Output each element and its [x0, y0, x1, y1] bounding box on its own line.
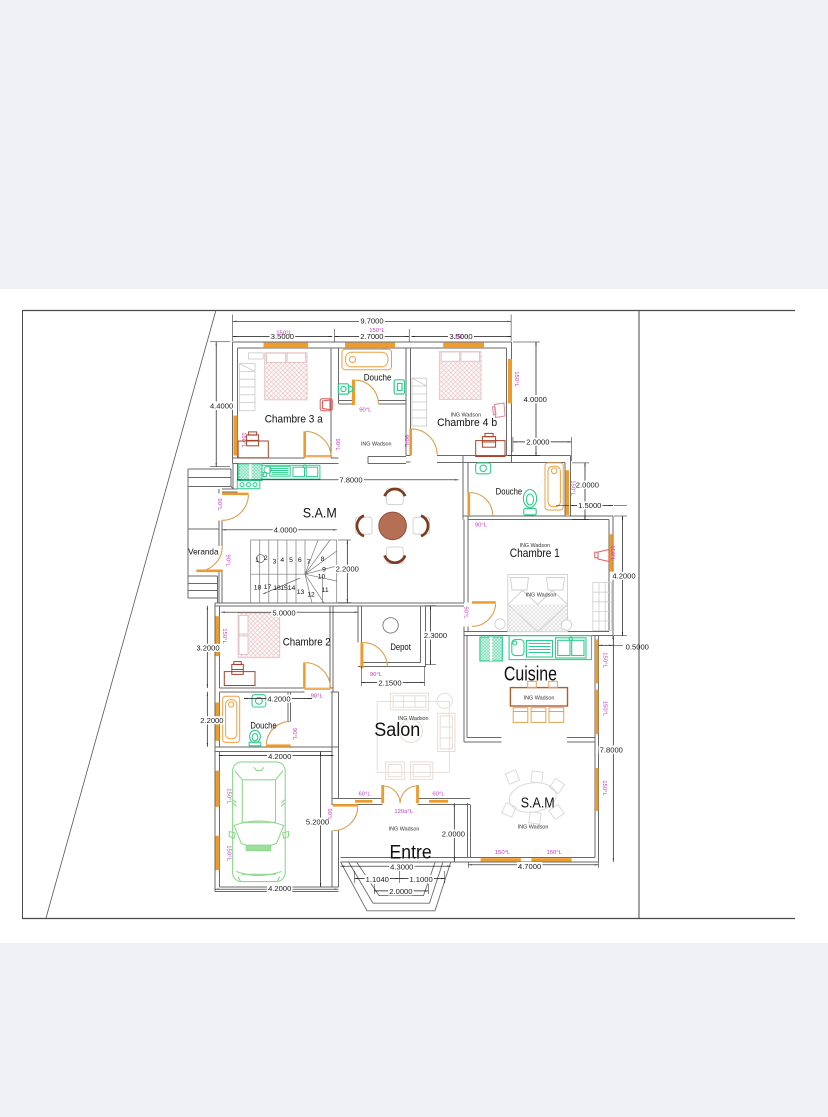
svg-text:9: 9: [322, 566, 326, 573]
svg-text:Chambre 1: Chambre 1: [510, 546, 560, 560]
svg-text:2.0000: 2.0000: [576, 481, 599, 490]
svg-text:Veranda: Veranda: [188, 547, 219, 557]
svg-text:150°L: 150°L: [221, 628, 227, 644]
svg-text:0.5000: 0.5000: [626, 642, 649, 651]
svg-text:S.A.M: S.A.M: [303, 505, 337, 521]
svg-text:3.2000: 3.2000: [196, 644, 219, 653]
svg-text:4.2000: 4.2000: [268, 752, 291, 761]
svg-text:8: 8: [321, 556, 325, 563]
svg-text:10: 10: [318, 574, 326, 581]
svg-text:4: 4: [280, 557, 284, 564]
svg-text:1.5000: 1.5000: [578, 501, 601, 510]
svg-text:90°L: 90°L: [326, 808, 332, 821]
svg-text:150°L: 150°L: [602, 701, 608, 717]
svg-text:150°L: 150°L: [569, 480, 575, 496]
svg-text:14: 14: [288, 585, 296, 592]
svg-text:150°L: 150°L: [609, 545, 615, 561]
svg-text:1: 1: [255, 557, 259, 564]
svg-text:2: 2: [264, 555, 268, 562]
svg-text:90°L: 90°L: [463, 606, 469, 619]
svg-text:2.1500: 2.1500: [378, 678, 401, 687]
svg-text:150°L: 150°L: [226, 788, 232, 804]
svg-text:90°L: 90°L: [370, 672, 383, 678]
svg-text:2.2000: 2.2000: [336, 565, 359, 574]
svg-text:150°L: 150°L: [601, 780, 607, 796]
svg-text:S.A.M: S.A.M: [521, 794, 555, 811]
svg-text:4.7000: 4.7000: [518, 862, 541, 871]
svg-text:Chambre 3 a: Chambre 3 a: [265, 414, 324, 426]
svg-text:90°L: 90°L: [225, 554, 231, 567]
svg-text:60°L: 60°L: [359, 792, 372, 798]
svg-text:90°L: 90°L: [475, 523, 488, 529]
svg-text:12: 12: [307, 591, 315, 598]
svg-text:Entre: Entre: [390, 842, 432, 864]
svg-text:4.4000: 4.4000: [210, 401, 233, 410]
svg-text:4.0000: 4.0000: [524, 395, 547, 404]
svg-text:ING Wadson: ING Wadson: [389, 826, 420, 832]
svg-text:ING Wadson: ING Wadson: [526, 593, 557, 599]
svg-text:90°L: 90°L: [311, 693, 324, 699]
svg-text:ING Wadson: ING Wadson: [361, 442, 392, 448]
svg-text:ING Wadson: ING Wadson: [524, 695, 555, 701]
svg-text:3: 3: [273, 559, 277, 566]
svg-text:9.7000: 9.7000: [360, 316, 383, 325]
svg-text:11: 11: [322, 587, 329, 594]
svg-text:150°L: 150°L: [513, 371, 519, 387]
svg-text:150°L: 150°L: [369, 328, 385, 334]
svg-text:4.0000: 4.0000: [274, 526, 297, 535]
svg-text:2.0000: 2.0000: [526, 438, 549, 447]
svg-text:Salon: Salon: [374, 720, 420, 741]
svg-text:4.3000: 4.3000: [390, 863, 413, 872]
svg-text:60°L: 60°L: [432, 792, 445, 798]
svg-text:ING Wadson: ING Wadson: [518, 825, 549, 831]
svg-text:120a°L: 120a°L: [394, 809, 413, 815]
svg-text:150°L: 150°L: [240, 432, 246, 448]
svg-text:90°L: 90°L: [291, 728, 297, 741]
svg-text:Douche: Douche: [496, 487, 523, 497]
svg-text:Cuisine: Cuisine: [504, 664, 557, 686]
svg-text:90°L: 90°L: [359, 408, 372, 414]
svg-text:4.2000: 4.2000: [612, 572, 635, 581]
svg-text:Douche: Douche: [364, 372, 392, 382]
svg-text:150°L: 150°L: [602, 652, 608, 668]
svg-text:4.2000: 4.2000: [267, 695, 290, 704]
svg-text:2.0000: 2.0000: [389, 887, 412, 896]
svg-text:6: 6: [298, 557, 302, 564]
svg-text:5.2000: 5.2000: [306, 818, 329, 827]
svg-text:17: 17: [264, 584, 272, 591]
svg-text:18: 18: [254, 584, 262, 591]
svg-text:1.1040: 1.1040: [366, 875, 389, 884]
svg-text:4.2000: 4.2000: [268, 884, 291, 893]
svg-text:150°L: 150°L: [454, 335, 470, 341]
svg-text:150°L: 150°L: [226, 845, 232, 861]
svg-text:15: 15: [280, 585, 288, 592]
svg-text:90°L: 90°L: [334, 439, 340, 452]
svg-text:90°L: 90°L: [403, 435, 409, 448]
svg-text:2.2000: 2.2000: [200, 716, 223, 725]
svg-text:Chambre 2: Chambre 2: [283, 636, 331, 648]
svg-text:5.0000: 5.0000: [272, 608, 295, 617]
svg-text:5: 5: [289, 557, 293, 564]
svg-text:13: 13: [297, 589, 305, 596]
svg-text:Depot: Depot: [390, 642, 411, 652]
svg-text:7: 7: [307, 559, 311, 566]
svg-text:90°L: 90°L: [216, 498, 222, 511]
svg-text:Chambre 4 b: Chambre 4 b: [437, 417, 497, 429]
svg-text:7.8000: 7.8000: [600, 745, 623, 754]
svg-text:150°L: 150°L: [546, 850, 562, 856]
svg-text:7.8000: 7.8000: [339, 476, 362, 485]
svg-text:150°L: 150°L: [276, 331, 292, 337]
svg-text:1.1000: 1.1000: [409, 875, 432, 884]
svg-text:2.3000: 2.3000: [424, 631, 447, 640]
svg-text:150°L: 150°L: [495, 850, 511, 856]
svg-text:Douche: Douche: [250, 720, 276, 730]
svg-text:16: 16: [273, 585, 281, 592]
svg-text:2.0000: 2.0000: [442, 829, 465, 838]
